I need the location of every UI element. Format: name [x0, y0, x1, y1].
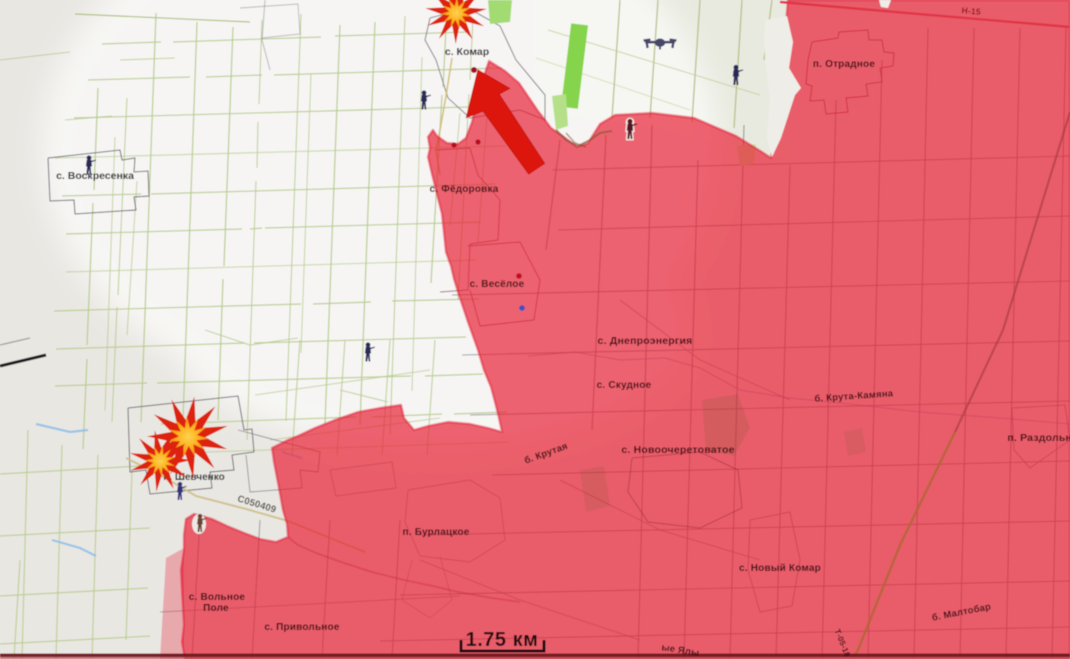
- svg-text:с. Воскресенка: с. Воскресенка: [56, 170, 134, 182]
- svg-text:Поле: Поле: [203, 603, 229, 614]
- svg-text:п. Шевченко: п. Шевченко: [163, 472, 224, 483]
- svg-text:с. Скудное: с. Скудное: [597, 380, 652, 391]
- svg-text:п. Бурлацкое: п. Бурлацкое: [403, 527, 470, 538]
- svg-text:с. Комар: с. Комар: [445, 46, 489, 58]
- svg-text:с. Весёлое: с. Весёлое: [470, 279, 525, 290]
- svg-text:с. Фёдоровка: с. Фёдоровка: [429, 184, 498, 195]
- svg-text:с. Вольное: с. Вольное: [189, 592, 246, 603]
- svg-text:с. Новоочеретоватое: с. Новоочеретоватое: [621, 444, 734, 456]
- svg-text:с. Днепроэнергия: с. Днепроэнергия: [598, 335, 693, 347]
- svg-text:с. Привольное: с. Привольное: [264, 622, 339, 633]
- svg-text:п. Раздольное: п. Раздольное: [1007, 432, 1070, 444]
- svg-text:с. Новый Комар: с. Новый Комар: [739, 563, 821, 574]
- svg-text:1.75 км: 1.75 км: [466, 629, 539, 651]
- svg-text:п. Отрадное: п. Отрадное: [813, 59, 875, 70]
- svg-text:Н-15: Н-15: [961, 5, 981, 17]
